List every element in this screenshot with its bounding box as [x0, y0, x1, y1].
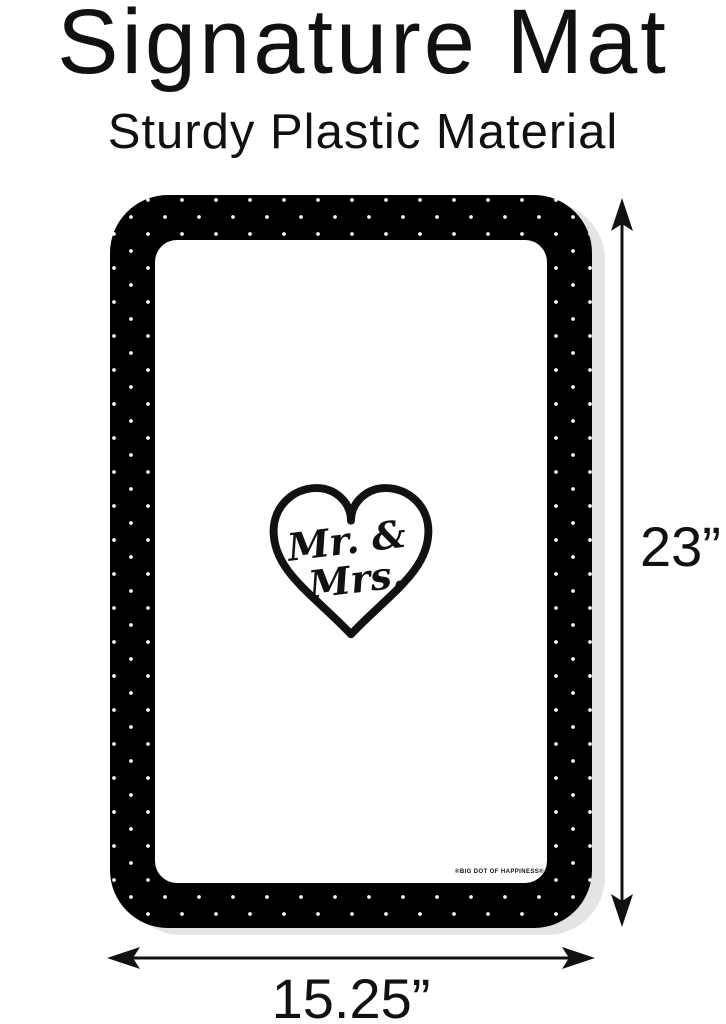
- height-dimension-arrow-icon: [606, 197, 638, 928]
- brand-mark: ®BIG DOT OF HAPPINESS®: [455, 869, 544, 875]
- mat-surface: Mr. & Mrs. ®BIG DOT OF HAPPINESS®: [155, 240, 547, 883]
- heart-icon: Mr. & Mrs.: [265, 479, 437, 645]
- width-dimension-label: 15.25”: [110, 966, 592, 1024]
- page-title: Signature Mat: [0, 0, 726, 91]
- page-subtitle: Sturdy Plastic Material: [0, 104, 726, 160]
- signature-mat: Mr. & Mrs. ®BIG DOT OF HAPPINESS®: [110, 195, 592, 928]
- product-infographic: Signature Mat Sturdy Plastic Material Mr…: [0, 0, 726, 1024]
- height-dimension-label: 23”: [640, 514, 726, 579]
